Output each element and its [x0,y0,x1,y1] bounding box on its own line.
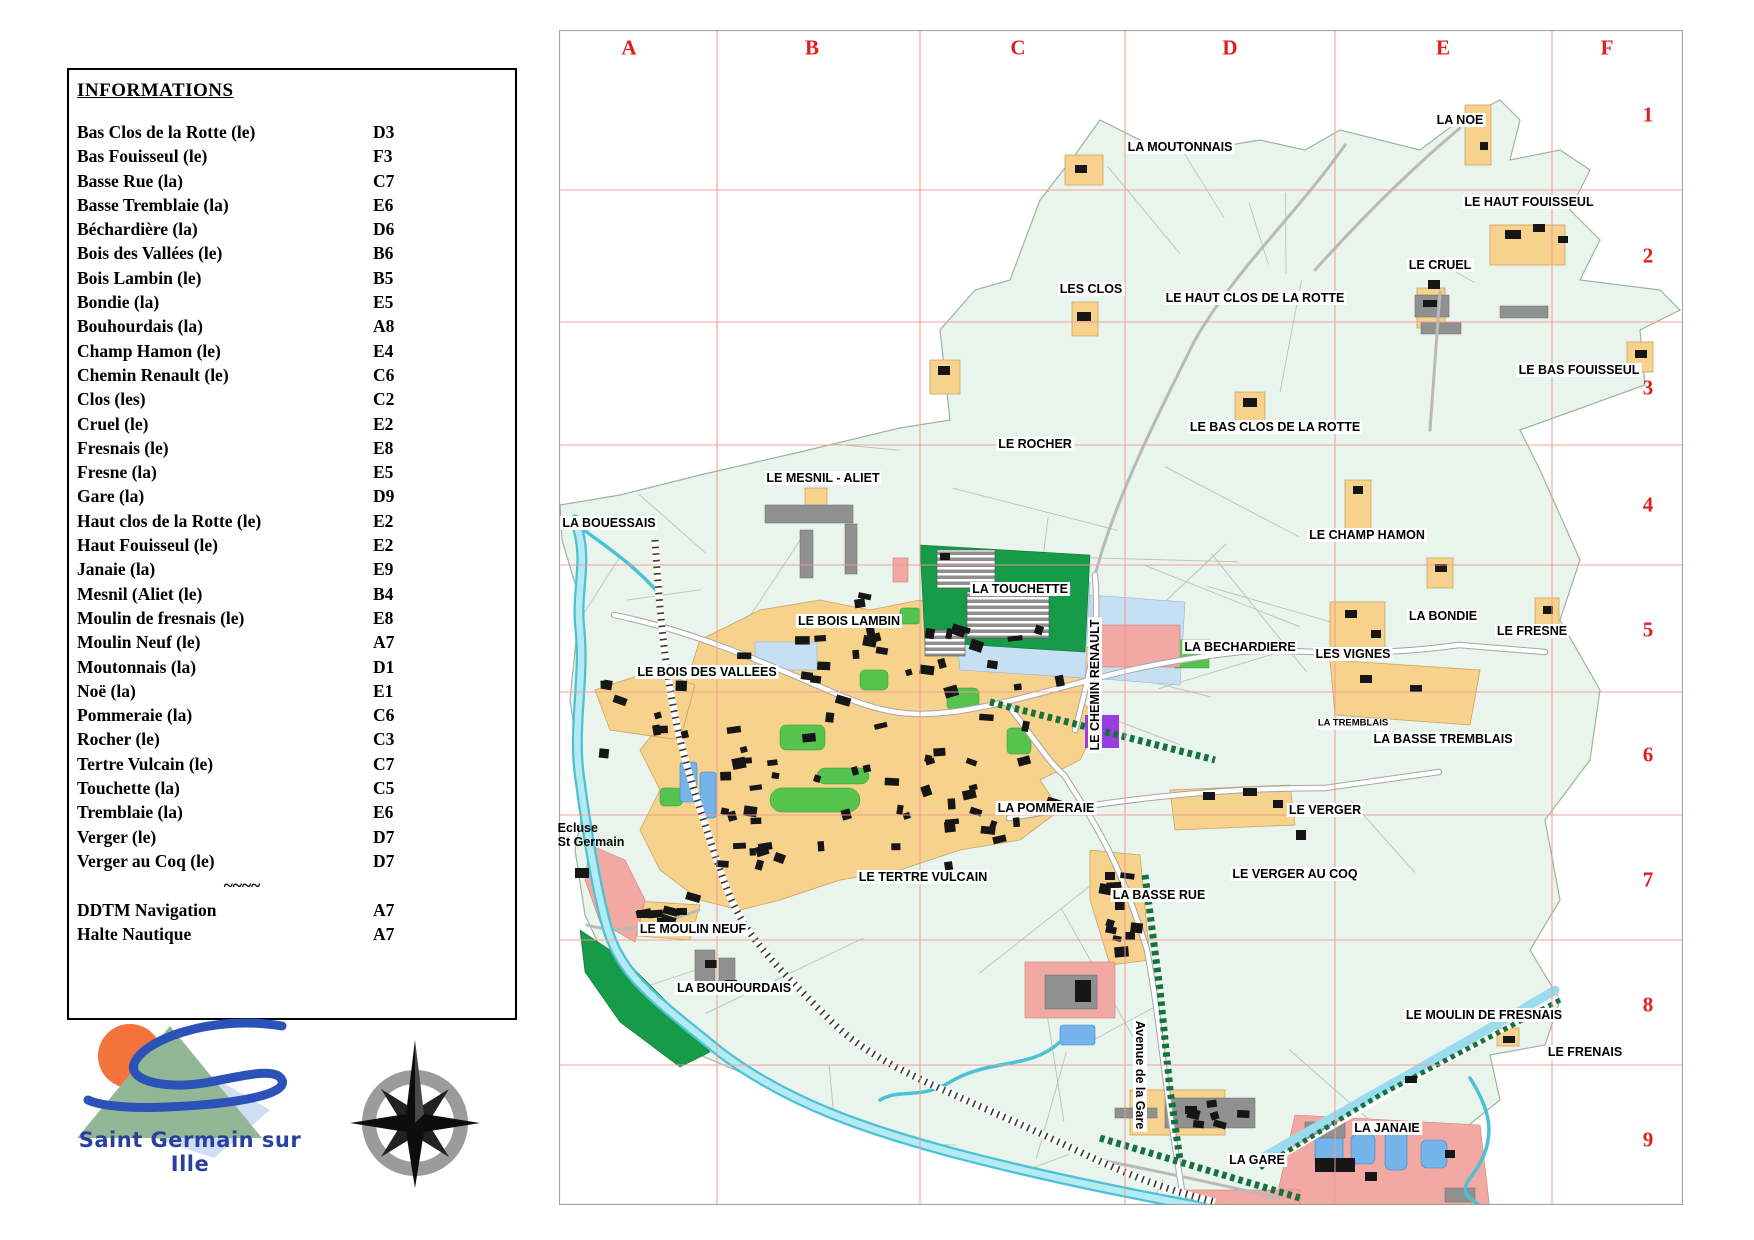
info-entry: Bas Clos de la Rotte (le)D3 [77,122,507,146]
grid-number-1: 1 [1643,103,1654,128]
compass-rose [330,1038,500,1208]
map-label: LA NOE [1435,113,1486,127]
grid-number-9: 9 [1643,1128,1654,1153]
grid-coordinate: C3 [373,729,394,750]
grid-coordinate: D6 [373,219,394,240]
info-entry: Bas Fouisseul (le)F3 [77,146,507,170]
info-entry: Champ Hamon (le)E4 [77,341,507,365]
map-label: LA MOUTONNAIS [1126,140,1235,154]
info-entry: Moulin de fresnais (le)E8 [77,608,507,632]
map-label: LA BONDIE [1407,609,1479,623]
info-entry: Tremblaie (la)E6 [77,802,507,826]
info-entry: Mesnil (Aliet (le)B4 [77,584,507,608]
map-label: LE CRUEL [1407,258,1474,272]
grid-letter-E: E [1436,36,1450,61]
grid-coordinate: D7 [373,827,394,848]
place-name: Bondie (la) [77,292,159,312]
info-entry: Rocher (le)C3 [77,729,507,753]
place-name: Bas Fouisseul (le) [77,146,207,166]
map-label: LE CHAMP HAMON [1307,528,1427,542]
info-entry: Pommeraie (la)C6 [77,705,507,729]
place-name: Touchette (la) [77,778,180,798]
map-label: LA TOUCHETTE [970,582,1070,596]
map-label: LE VERGER [1287,803,1363,817]
map-label: LE FRENAIS [1546,1045,1624,1059]
info-entry: Cruel (le)E2 [77,414,507,438]
place-name: Gare (la) [77,486,144,506]
info-entry: Gare (la)D9 [77,486,507,510]
place-name: Chemin Renault (le) [77,365,229,385]
map-label: LA BECHARDIERE [1182,640,1297,654]
map-label: LE MOULIN DE FRESNAIS [1404,1008,1564,1022]
grid-coordinate: A7 [373,924,394,945]
place-name: Moutonnais (la) [77,657,196,677]
place-name: Pommeraie (la) [77,705,192,725]
map-label: LES CLOS [1058,282,1125,296]
place-name: Bois Lambin (le) [77,268,201,288]
place-name: Verger au Coq (le) [77,851,215,871]
grid-coordinate: D7 [373,851,394,872]
map-label: LE BOIS DES VALLEES [635,665,778,679]
info-panel-title: INFORMATIONS [77,80,515,102]
info-entry: Halte NautiqueA7 [77,924,507,948]
place-name: Basse Tremblaie (la) [77,195,229,215]
place-name: Fresne (la) [77,462,157,482]
grid-coordinate: E9 [373,559,393,580]
grid-coordinate: E4 [373,341,393,362]
map-label: LA JANAIE [1352,1121,1422,1135]
place-name: Bas Clos de la Rotte (le) [77,122,255,142]
map-label: LE VERGER AU COQ [1230,867,1359,881]
info-entry: Clos (les)C2 [77,389,507,413]
grid-coordinate: B4 [373,584,393,605]
grid-coordinate: E2 [373,511,393,532]
grid-coordinate: F3 [373,146,392,167]
grid-coordinate: C2 [373,389,394,410]
grid-coordinate: E6 [373,195,393,216]
grid-coordinate: E2 [373,414,393,435]
info-entry: Bouhourdais (la)A8 [77,316,507,340]
map-label: LE BAS FOUISSEUL [1517,363,1642,377]
grid-letter-C: C [1010,36,1025,61]
grid-coordinate: E5 [373,292,393,313]
grid-coordinate: E5 [373,462,393,483]
info-entry: Basse Tremblaie (la)E6 [77,195,507,219]
info-entry: Chemin Renault (le)C6 [77,365,507,389]
place-name: Halte Nautique [77,924,191,944]
map-label: LE FRESNE [1495,624,1569,638]
grid-letter-F: F [1601,36,1614,61]
info-entry: Bois Lambin (le)B5 [77,268,507,292]
grid-coordinate: E8 [373,608,393,629]
grid-coordinate: A7 [373,632,394,653]
place-name: Bois des Vallées (le) [77,243,222,263]
grid-coordinate: A8 [373,316,394,337]
grid-number-4: 4 [1643,493,1654,518]
grid-number-7: 7 [1643,868,1654,893]
place-name: Fresnais (le) [77,438,169,458]
info-entry: Fresnais (le)E8 [77,438,507,462]
info-entry: Noë (la)E1 [77,681,507,705]
info-entry: Haut clos de la Rotte (le)E2 [77,511,507,535]
place-name: Mesnil (Aliet (le) [77,584,202,604]
map-label: LA BASSE TREMBLAIS [1371,732,1514,746]
grid-coordinate: C5 [373,778,394,799]
logo-text: Saint Germain sur Ille [60,1128,320,1176]
map-label: EcluseSt Germain [556,821,627,849]
map-label: LE TERTRE VULCAIN [857,870,989,884]
grid-coordinate: C7 [373,754,394,775]
place-name: Haut Fouisseul (le) [77,535,218,555]
map-label: LA GARE [1227,1153,1287,1167]
grid-coordinate: E6 [373,802,393,823]
map-label: LE MESNIL - ALIET [764,471,881,485]
place-name: Moulin de fresnais (le) [77,608,244,628]
info-entry: Moutonnais (la)D1 [77,657,507,681]
info-panel: INFORMATIONS Bas Clos de la Rotte (le)D3… [67,68,517,1020]
town-map: ABCDEF 123456789 LA NOELA MOUTONNAISLE H… [559,30,1683,1205]
place-name: Tremblaie (la) [77,802,183,822]
info-entry: Bondie (la)E5 [77,292,507,316]
place-index-list: Bas Clos de la Rotte (le)D3Bas Fouisseul… [77,122,507,948]
map-label: LA POMMERAIE [996,801,1097,815]
map-label: LA BASSE RUE [1111,888,1208,902]
map-label: LE BAS CLOS DE LA ROTTE [1188,420,1362,434]
info-entry: Haut Fouisseul (le)E2 [77,535,507,559]
place-name: Moulin Neuf (le) [77,632,200,652]
map-label: LE BOIS LAMBIN [796,614,902,628]
place-name: Tertre Vulcain (le) [77,754,213,774]
map-label: LE HAUT FOUISSEUL [1462,195,1595,209]
info-entry: Touchette (la)C5 [77,778,507,802]
info-entry: DDTM NavigationA7 [77,900,507,924]
grid-letter-B: B [805,36,819,61]
map-label: LE CHEMIN RENAULT [1088,617,1102,752]
map-label: Avenue de la Gare [1133,1019,1147,1132]
grid-coordinate: B6 [373,243,393,264]
place-name: Basse Rue (la) [77,171,183,191]
compass-rose-icon [330,1038,500,1208]
grid-coordinate: C6 [373,365,394,386]
info-entry: Moulin Neuf (le)A7 [77,632,507,656]
grid-coordinate: D9 [373,486,394,507]
grid-number-2: 2 [1643,244,1654,269]
page: { "info_panel": { "title": "INFORMATIONS… [0,0,1754,1240]
map-label: LE ROCHER [996,437,1074,451]
grid-coordinate: B5 [373,268,393,289]
place-name: Rocher (le) [77,729,160,749]
map-label: LES VIGNES [1313,647,1392,661]
info-entry: Janaie (la)E9 [77,559,507,583]
grid-coordinate: D1 [373,657,394,678]
grid-letter-A: A [621,36,636,61]
info-entry: Tertre Vulcain (le)C7 [77,754,507,778]
grid-coordinate: E1 [373,681,393,702]
place-name: Bouhourdais (la) [77,316,203,336]
info-entry: Bois des Vallées (le)B6 [77,243,507,267]
info-entry: Béchardière (la)D6 [77,219,507,243]
map-label: LE MOULIN NEUF [638,922,748,936]
place-name: DDTM Navigation [77,900,217,920]
place-name: Janaie (la) [77,559,155,579]
place-name: Champ Hamon (le) [77,341,221,361]
grid-coordinate: A7 [373,900,394,921]
grid-coordinate: E8 [373,438,393,459]
grid-number-5: 5 [1643,618,1654,643]
place-name: Haut clos de la Rotte (le) [77,511,261,531]
place-name: Noë (la) [77,681,136,701]
map-label: LA TREMBLAIS [1316,719,1390,730]
info-entry: Fresne (la)E5 [77,462,507,486]
info-entry: Verger (le)D7 [77,827,507,851]
grid-coordinate: E2 [373,535,393,556]
place-name: Verger (le) [77,827,156,847]
grid-number-8: 8 [1643,993,1654,1018]
place-name: Cruel (le) [77,414,148,434]
grid-number-6: 6 [1643,743,1654,768]
info-entry: Verger au Coq (le)D7 [77,851,507,875]
list-separator: ~~~~ [77,875,407,899]
grid-coordinate: C6 [373,705,394,726]
grid-coordinate: D3 [373,122,394,143]
info-entry: Basse Rue (la)C7 [77,171,507,195]
map-label: LE HAUT CLOS DE LA ROTTE [1164,291,1347,305]
map-label: LA BOUHOURDAIS [675,981,793,995]
place-name: Clos (les) [77,389,146,409]
place-name: Béchardière (la) [77,219,198,239]
grid-coordinate: C7 [373,171,394,192]
map-label: LA BOUESSAIS [560,516,657,530]
grid-letter-D: D [1222,36,1237,61]
grid-number-3: 3 [1643,376,1654,401]
